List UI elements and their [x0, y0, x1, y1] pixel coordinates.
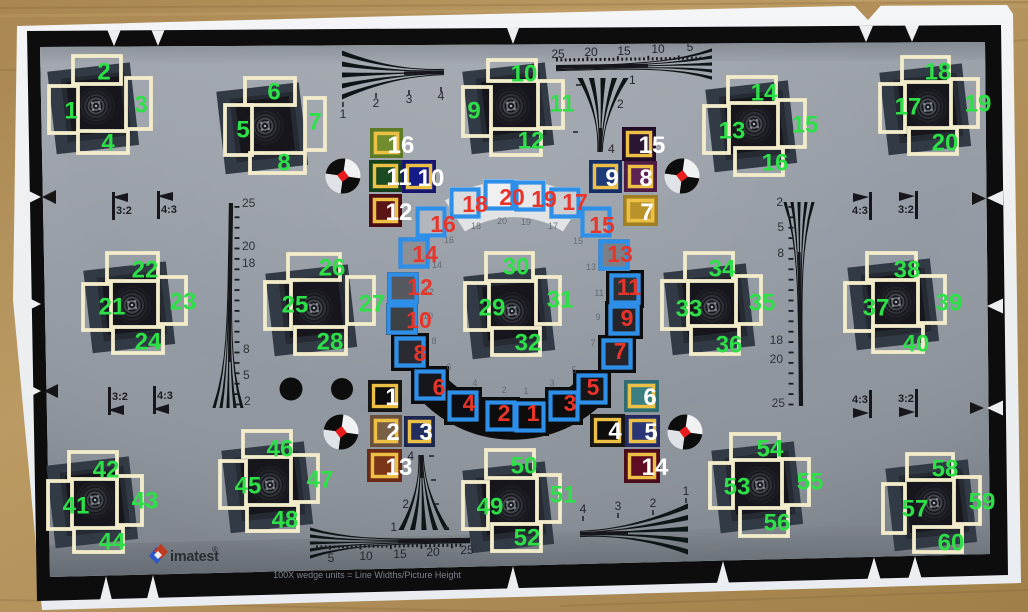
svg-text:2: 2	[402, 497, 409, 511]
svg-text:22: 22	[132, 257, 159, 284]
svg-text:14: 14	[642, 454, 669, 481]
svg-text:2: 2	[386, 419, 399, 446]
svg-text:8: 8	[243, 342, 250, 356]
svg-text:56: 56	[764, 510, 791, 537]
svg-text:59: 59	[969, 489, 996, 516]
svg-text:10: 10	[406, 307, 432, 333]
svg-text:9: 9	[595, 312, 600, 322]
svg-text:20: 20	[426, 545, 440, 559]
svg-text:7: 7	[614, 338, 627, 364]
svg-text:18: 18	[242, 256, 256, 270]
svg-text:7: 7	[590, 338, 595, 348]
svg-text:3:2: 3:2	[898, 204, 914, 216]
svg-text:25: 25	[282, 292, 309, 319]
svg-text:2: 2	[244, 394, 251, 408]
svg-text:2: 2	[373, 96, 380, 110]
svg-text:5: 5	[243, 368, 250, 382]
svg-text:36: 36	[716, 332, 743, 359]
svg-text:54: 54	[757, 436, 784, 463]
svg-text:13: 13	[607, 241, 633, 267]
svg-text:41: 41	[63, 493, 90, 520]
svg-text:20: 20	[242, 239, 256, 253]
svg-text:10: 10	[359, 549, 373, 563]
svg-text:8: 8	[277, 150, 290, 177]
svg-text:4:3: 4:3	[852, 394, 868, 406]
svg-text:1: 1	[683, 484, 690, 498]
svg-text:3: 3	[564, 390, 577, 416]
svg-text:26: 26	[319, 255, 346, 282]
svg-text:27: 27	[359, 291, 386, 318]
svg-text:4: 4	[580, 502, 587, 516]
svg-text:20: 20	[497, 216, 507, 226]
svg-text:9: 9	[605, 165, 618, 192]
svg-text:23: 23	[170, 289, 197, 316]
svg-text:48: 48	[272, 507, 299, 534]
svg-text:18: 18	[462, 191, 488, 217]
svg-text:43: 43	[132, 488, 159, 515]
svg-text:8: 8	[431, 336, 436, 346]
svg-text:15: 15	[792, 112, 819, 139]
svg-text:19: 19	[521, 217, 531, 227]
svg-text:2: 2	[97, 59, 110, 86]
svg-text:15: 15	[589, 212, 615, 238]
svg-text:3:2: 3:2	[112, 391, 128, 403]
svg-text:10: 10	[418, 165, 445, 192]
svg-text:®: ®	[212, 545, 218, 554]
svg-text:9: 9	[621, 305, 634, 331]
svg-text:10: 10	[651, 42, 665, 56]
svg-text:25: 25	[242, 196, 256, 210]
svg-text:2: 2	[617, 97, 624, 111]
svg-text:6: 6	[433, 374, 446, 400]
svg-text:18: 18	[925, 59, 952, 86]
svg-text:16: 16	[762, 150, 789, 177]
svg-text:11: 11	[386, 164, 411, 191]
svg-text:5: 5	[777, 220, 784, 234]
svg-text:49: 49	[477, 494, 504, 521]
svg-text:1: 1	[390, 520, 397, 534]
svg-text:2: 2	[501, 385, 506, 395]
svg-text:25: 25	[772, 396, 786, 410]
svg-text:14: 14	[751, 80, 778, 107]
svg-text:11: 11	[617, 274, 642, 300]
svg-text:45: 45	[235, 473, 262, 500]
svg-text:2: 2	[498, 400, 511, 426]
svg-text:13: 13	[586, 262, 596, 272]
svg-text:34: 34	[709, 256, 736, 283]
svg-text:17: 17	[548, 221, 558, 231]
svg-text:11: 11	[594, 288, 603, 298]
svg-text:3: 3	[615, 499, 622, 513]
svg-text:53: 53	[724, 474, 751, 501]
svg-text:1: 1	[340, 107, 347, 121]
svg-text:5: 5	[328, 551, 335, 565]
svg-text:58: 58	[932, 456, 959, 483]
svg-text:2: 2	[776, 195, 783, 209]
svg-text:20: 20	[584, 45, 598, 59]
svg-text:20: 20	[932, 130, 959, 157]
svg-text:20: 20	[499, 184, 525, 210]
svg-text:31: 31	[547, 287, 574, 314]
svg-text:4: 4	[463, 390, 476, 416]
svg-text:18: 18	[770, 333, 784, 347]
svg-text:6: 6	[643, 384, 656, 411]
svg-text:18: 18	[471, 221, 481, 231]
svg-text:3: 3	[549, 378, 554, 388]
svg-text:20: 20	[770, 352, 784, 366]
svg-text:1: 1	[64, 98, 77, 125]
svg-text:9: 9	[467, 98, 480, 125]
svg-text:38: 38	[894, 257, 921, 284]
svg-text:51: 51	[550, 482, 577, 509]
svg-text:24: 24	[135, 329, 162, 356]
svg-text:5: 5	[644, 419, 657, 446]
svg-text:40: 40	[903, 331, 930, 358]
svg-text:4: 4	[608, 142, 615, 156]
svg-text:21: 21	[99, 294, 126, 321]
svg-text:8: 8	[639, 165, 652, 192]
svg-text:5: 5	[571, 365, 576, 375]
svg-text:16: 16	[430, 211, 456, 237]
svg-text:30: 30	[503, 254, 530, 281]
svg-text:5: 5	[687, 40, 694, 54]
svg-text:12: 12	[518, 128, 545, 155]
svg-text:44: 44	[99, 529, 126, 556]
svg-text:32: 32	[515, 330, 542, 357]
svg-text:8: 8	[414, 340, 427, 366]
svg-text:3: 3	[134, 92, 147, 119]
svg-text:3:2: 3:2	[116, 205, 132, 217]
svg-text:19: 19	[965, 91, 992, 118]
svg-text:37: 37	[863, 295, 890, 322]
svg-text:8: 8	[777, 246, 784, 260]
svg-text:14: 14	[412, 241, 438, 267]
svg-text:47: 47	[307, 467, 334, 494]
svg-text:33: 33	[676, 296, 703, 323]
svg-text:52: 52	[514, 525, 541, 552]
svg-text:1: 1	[523, 386, 528, 396]
svg-text:12: 12	[386, 199, 413, 226]
svg-text:29: 29	[479, 295, 506, 322]
svg-text:55: 55	[797, 469, 824, 496]
svg-text:50: 50	[511, 453, 538, 480]
svg-text:5: 5	[236, 117, 249, 144]
svg-text:7: 7	[640, 199, 653, 226]
svg-text:28: 28	[317, 329, 344, 356]
svg-text:15: 15	[393, 547, 407, 561]
svg-text:7: 7	[308, 109, 321, 136]
svg-text:6: 6	[267, 79, 280, 106]
svg-text:4: 4	[472, 378, 477, 388]
svg-text:57: 57	[902, 496, 929, 523]
svg-text:100X wedge units = Line Widths: 100X wedge units = Line Widths/Picture H…	[273, 570, 461, 580]
svg-text:25: 25	[551, 47, 565, 61]
svg-text:3:2: 3:2	[898, 393, 914, 405]
svg-text:4: 4	[407, 449, 414, 463]
svg-text:1: 1	[527, 400, 540, 426]
svg-text:15: 15	[617, 44, 631, 58]
svg-text:17: 17	[895, 94, 922, 121]
svg-text:4:3: 4:3	[161, 204, 177, 216]
svg-text:10: 10	[511, 61, 538, 88]
svg-text:39: 39	[936, 290, 963, 317]
svg-text:12: 12	[407, 274, 433, 300]
svg-text:15: 15	[639, 132, 666, 159]
svg-text:11: 11	[549, 91, 574, 118]
svg-text:46: 46	[267, 436, 294, 463]
svg-text:1: 1	[629, 73, 636, 87]
svg-text:25: 25	[460, 543, 474, 557]
svg-text:13: 13	[719, 118, 746, 145]
svg-text:60: 60	[938, 530, 965, 557]
svg-text:4:3: 4:3	[852, 205, 868, 217]
svg-text:4:3: 4:3	[157, 390, 173, 402]
svg-text:16: 16	[388, 132, 415, 159]
svg-text:5: 5	[587, 374, 600, 400]
svg-text:1: 1	[385, 384, 398, 411]
svg-text:4: 4	[101, 130, 115, 157]
svg-text:3: 3	[419, 419, 432, 446]
svg-text:4: 4	[608, 418, 622, 445]
svg-text:6: 6	[446, 362, 451, 372]
svg-text:19: 19	[531, 186, 557, 212]
svg-text:42: 42	[93, 457, 120, 484]
svg-text:35: 35	[749, 290, 776, 317]
svg-text:2: 2	[650, 496, 657, 510]
svg-text:17: 17	[562, 189, 588, 215]
